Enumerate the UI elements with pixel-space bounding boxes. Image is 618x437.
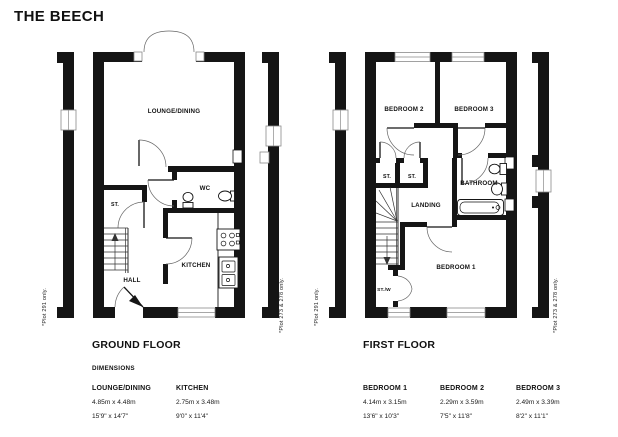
ff-staircase	[376, 187, 398, 265]
dim-metric: 4.14m x 3.15m	[363, 399, 407, 406]
dim-room-name: KITCHEN	[176, 385, 220, 392]
gf-sink-icon	[219, 257, 238, 288]
dimensions-label: DIMENSIONS	[92, 365, 135, 372]
room-label-lounge-dining: LOUNGE/DINING	[148, 108, 200, 115]
room-label-wc: WC	[200, 185, 211, 192]
room-label-bedroom3: BEDROOM 3	[454, 106, 494, 113]
gf-dim-lounge: LOUNGE/DINING 4.85m x 4.48m 15'9" x 14'7…	[92, 385, 151, 427]
page-title: THE BEECH	[14, 8, 104, 25]
gf-dim-kitchen: KITCHEN 2.75m x 3.48m 9'0" x 11'4"	[176, 385, 220, 427]
dim-imperial: 13'6" x 10'3"	[363, 413, 407, 420]
ground-floor-plan: LOUNGE/DINING WC ST. KITCHEN HALL	[57, 31, 281, 318]
ff-note-left: *Plot 291 only.	[314, 288, 320, 326]
dim-metric: 2.49m x 3.39m	[516, 399, 560, 406]
ff-dim-bedroom2: BEDROOM 2 2.29m x 3.59m 7'5" x 11'8"	[440, 385, 484, 427]
gf-lounge-door	[139, 140, 166, 167]
gf-french-doors	[134, 31, 204, 61]
gf-note-left: *Plot 291 only.	[42, 288, 48, 326]
ff-party-wall-left	[329, 52, 348, 318]
dim-metric: 2.75m x 3.48m	[176, 399, 220, 406]
room-label-bedroom2: BEDROOM 2	[384, 106, 424, 113]
gf-party-wall-left	[57, 52, 76, 318]
first-floor-heading: FIRST FLOOR	[363, 339, 435, 351]
dim-room-name: BEDROOM 1	[363, 385, 407, 392]
ff-toilet-icon	[489, 164, 507, 175]
dim-imperial: 9'0" x 11'4"	[176, 413, 220, 420]
gf-party-wall-right	[260, 52, 281, 318]
room-label-bathroom: BATHROOM	[460, 180, 498, 187]
room-label-bedroom1: BEDROOM 1	[436, 264, 476, 271]
gf-front-door	[115, 287, 143, 307]
gf-basin-icon	[219, 191, 235, 201]
room-label-store2: ST.	[408, 174, 416, 180]
ff-store1-door	[380, 142, 396, 158]
dim-metric: 2.29m x 3.59m	[440, 399, 484, 406]
ff-dim-bedroom1: BEDROOM 1 4.14m x 3.15m 13'6" x 10'3"	[363, 385, 407, 427]
ff-note-right: *Plot 273 & 278 only.	[553, 278, 559, 333]
dim-room-name: LOUNGE/DINING	[92, 385, 151, 392]
room-label-landing: LANDING	[411, 202, 441, 209]
gf-staircase	[104, 228, 128, 273]
dim-metric: 4.85m x 4.48m	[92, 399, 151, 406]
room-label-store: ST.	[111, 202, 119, 208]
first-floor-plan: BEDROOM 2 BEDROOM 3 ST. ST. BATHROOM LAN…	[329, 52, 551, 318]
ff-bath-icon	[458, 200, 504, 216]
ff-party-wall-right	[532, 52, 551, 318]
ff-bedroom1-door	[427, 227, 452, 252]
ff-wardrobe-doors	[398, 276, 412, 301]
gf-store-door	[118, 202, 144, 228]
dim-imperial: 7'5" x 11'8"	[440, 413, 484, 420]
room-label-store-wardrobe: ST./W	[377, 287, 391, 293]
room-label-store1: ST.	[383, 174, 391, 180]
dim-room-name: BEDROOM 3	[516, 385, 560, 392]
room-label-hall: HALL	[123, 277, 140, 284]
gf-note-right: *Plot 273 & 278 only.	[279, 278, 285, 333]
dim-imperial: 8'2" x 11'1"	[516, 413, 560, 420]
gf-wc-door	[148, 180, 174, 206]
gf-kitchen-window	[178, 308, 215, 317]
dim-room-name: BEDROOM 2	[440, 385, 484, 392]
ground-floor-heading: GROUND FLOOR	[92, 339, 181, 351]
ff-bedroom3-door	[458, 128, 485, 155]
gf-kitchen-door	[166, 238, 192, 264]
gf-hob-icon	[217, 229, 240, 250]
floorplan-page: LOUNGE/DINING WC ST. KITCHEN HALL	[0, 0, 618, 437]
dim-imperial: 15'9" x 14'7"	[92, 413, 151, 420]
ff-store2-door	[404, 142, 420, 158]
gf-toilet-icon	[183, 192, 193, 208]
room-label-kitchen: KITCHEN	[182, 262, 211, 269]
ff-dim-bedroom3: BEDROOM 3 2.49m x 3.39m 8'2" x 11'1"	[516, 385, 560, 427]
ff-bedroom2-door	[387, 128, 414, 155]
